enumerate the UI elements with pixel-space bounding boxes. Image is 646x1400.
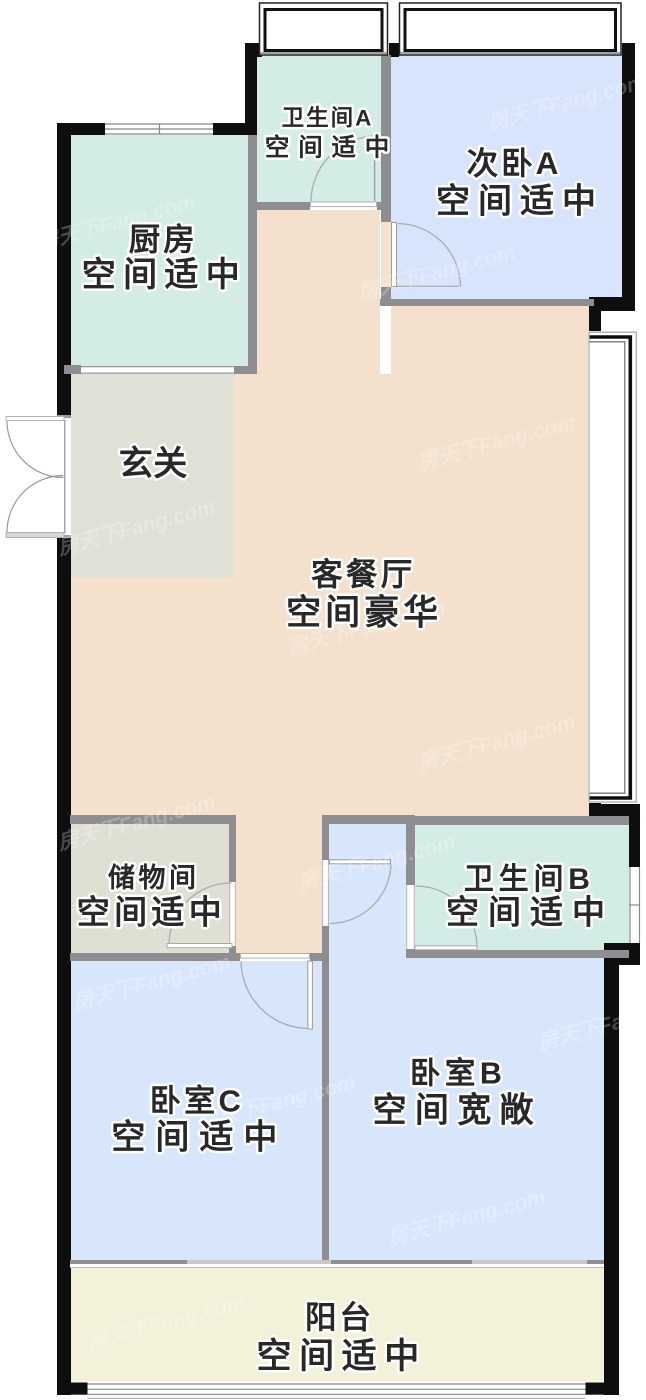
svg-text:阳台: 阳台 bbox=[305, 1299, 374, 1335]
svg-text:空间适中: 空间适中 bbox=[436, 183, 604, 221]
svg-text:空间适中: 空间适中 bbox=[82, 256, 247, 294]
svg-text:空间适中: 空间适中 bbox=[111, 1118, 287, 1156]
svg-text:空间宽敞: 空间宽敞 bbox=[373, 1090, 542, 1129]
svg-text:空间适中: 空间适中 bbox=[256, 1337, 426, 1376]
svg-text:空间适中: 空间适中 bbox=[265, 133, 398, 162]
svg-text:客餐厅: 客餐厅 bbox=[311, 556, 415, 592]
svg-text:次卧A: 次卧A bbox=[467, 145, 562, 181]
svg-text:厨房: 厨房 bbox=[129, 221, 198, 257]
svg-text:空间豪华: 空间豪华 bbox=[286, 593, 442, 632]
svg-text:卫生间B: 卫生间B bbox=[464, 863, 595, 896]
svg-text:玄关: 玄关 bbox=[119, 445, 188, 483]
svg-text:空间适中: 空间适中 bbox=[77, 894, 226, 931]
svg-text:卧室C: 卧室C bbox=[150, 1084, 245, 1119]
svg-text:卧室B: 卧室B bbox=[410, 1056, 507, 1091]
svg-text:空间适中: 空间适中 bbox=[446, 894, 614, 931]
svg-text:储物间: 储物间 bbox=[108, 863, 200, 893]
svg-text:卫生间A: 卫生间A bbox=[282, 106, 374, 131]
